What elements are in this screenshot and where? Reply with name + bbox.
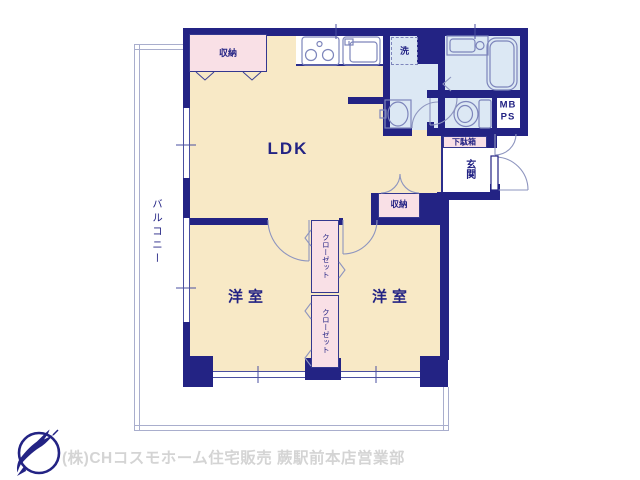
window-left-upper (183, 108, 190, 178)
bedroom-right-label: 洋室 (372, 288, 412, 305)
wall-bathroom-bottom (427, 90, 525, 98)
door-arc-meter-box (495, 134, 516, 155)
wall-washroom-bottom (383, 128, 412, 136)
meter-box-label-mb: MB (500, 101, 517, 112)
balcony-railing-bottom (134, 425, 449, 431)
wall-divider-under-storage (378, 218, 447, 225)
kitchen-counter-area (296, 34, 383, 65)
window-left-lower (183, 218, 190, 322)
balcony-railing-top (134, 44, 184, 50)
laundry-label: 洗 (400, 46, 409, 56)
washing-machine-area: 洗 (391, 37, 418, 65)
pillar-bottom-right (420, 356, 448, 387)
wall-right-upper (520, 28, 528, 136)
wall-entrance-corner (490, 184, 500, 193)
wall-toilet-bottom (427, 128, 525, 136)
storage-center-label: 収納 (390, 200, 407, 210)
wall-left-middle (183, 178, 190, 218)
bathroom-floor (445, 34, 520, 92)
ldk-label: LDK (268, 139, 309, 159)
balcony-label: バルコニー (151, 198, 163, 266)
window-bottom-right (341, 371, 420, 378)
wall-divider-left (183, 218, 268, 225)
closet-upper-label: クローゼット (321, 234, 330, 279)
window-bottom-left (213, 371, 305, 378)
balcony-railing-left (134, 44, 140, 431)
company-name-text: (株)CHコスモホーム住宅販売 蕨駅前本店営業部 (62, 446, 405, 468)
shoe-cabinet-label: 下駄箱 (452, 137, 476, 146)
wall-washroom-corner-block (417, 34, 445, 64)
wall-kitchen-stub (348, 97, 383, 104)
pillar-bottom-left (183, 356, 213, 387)
meter-box-label-ps: PS (501, 113, 516, 124)
company-logo-icon (12, 427, 66, 480)
floorplan-canvas: 洗 (0, 0, 640, 480)
balcony-railing-right (443, 387, 449, 431)
bedroom-left-label: 洋室 (228, 288, 268, 305)
entrance-label: 玄関 (463, 159, 475, 179)
storage-top-label: 収納 (219, 48, 237, 58)
kitchen-counter-edge (296, 64, 383, 66)
wall-divider-stub (339, 218, 343, 225)
wall-washroom-left (383, 34, 390, 130)
closet-lower-label: クローゼット (321, 309, 330, 354)
wall-meter-box-left (492, 95, 497, 128)
wall-shoe-cabinet-right (487, 136, 497, 148)
